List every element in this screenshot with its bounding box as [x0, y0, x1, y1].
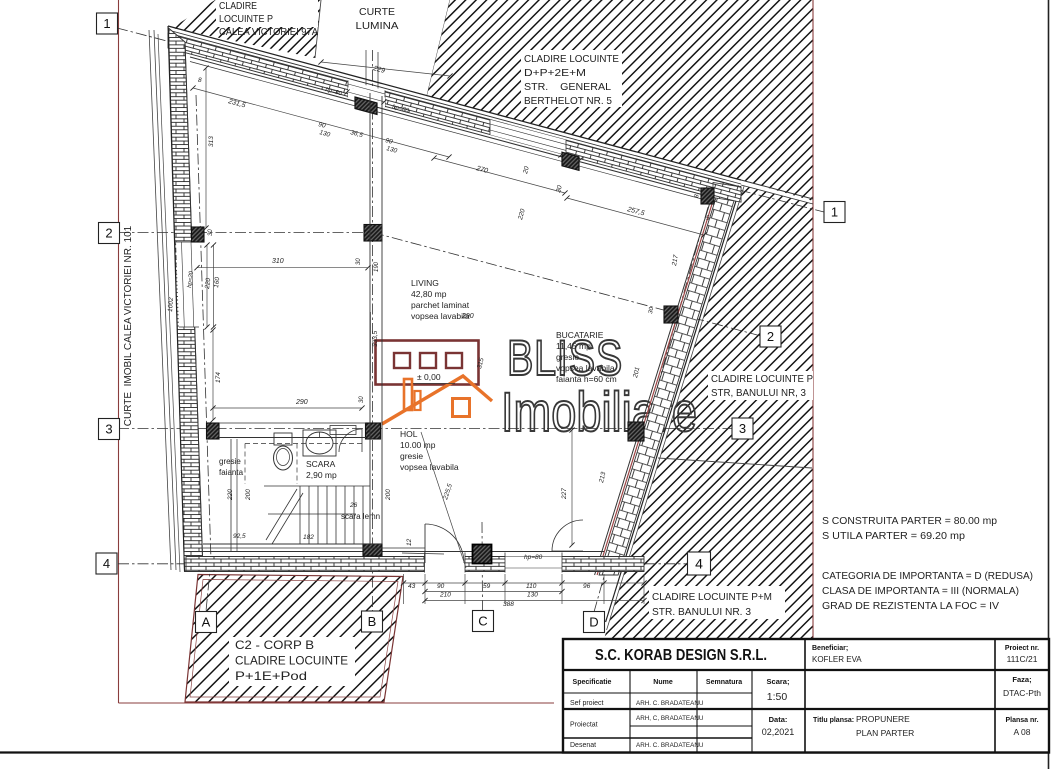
svg-text:111C/21: 111C/21 — [1007, 654, 1038, 664]
svg-text:parchet laminat: parchet laminat — [411, 300, 470, 310]
svg-text:92,5: 92,5 — [233, 533, 246, 540]
svg-text:CLADIRE LOCUINTE: CLADIRE LOCUINTE — [235, 654, 348, 668]
svg-text:LOCUINTE P: LOCUINTE P — [219, 13, 273, 25]
svg-text:C: C — [478, 614, 487, 629]
svg-text:LIVING: LIVING — [411, 278, 439, 288]
svg-text:STR, BANULUI NR, 3: STR, BANULUI NR, 3 — [711, 387, 806, 399]
svg-text:02,2021: 02,2021 — [762, 727, 795, 737]
svg-text:1: 1 — [103, 16, 110, 31]
svg-text:hp=80: hp=80 — [524, 554, 543, 561]
svg-text:227: 227 — [561, 488, 568, 500]
svg-text:S UTILA PARTER = 69.20 mp: S UTILA PARTER = 69.20 mp — [822, 530, 965, 542]
svg-text:A: A — [202, 615, 211, 630]
svg-text:S.C. KORAB DESIGN S.R.L.: S.C. KORAB DESIGN S.R.L. — [595, 647, 767, 664]
svg-text:182: 182 — [303, 534, 314, 541]
svg-text:A 08: A 08 — [1013, 727, 1030, 737]
svg-text:2,90 mp: 2,90 mp — [306, 470, 337, 480]
svg-text:26: 26 — [349, 502, 358, 509]
svg-text:388: 388 — [503, 601, 514, 608]
svg-text:3: 3 — [739, 421, 746, 436]
svg-text:30: 30 — [208, 229, 214, 236]
svg-text:P+1E+Pod: P+1E+Pod — [235, 669, 307, 683]
svg-text:333,5: 333,5 — [372, 330, 379, 347]
svg-text:vopsea lavabila: vopsea lavabila — [411, 311, 470, 321]
svg-text:± 0,00: ± 0,00 — [417, 372, 441, 382]
svg-text:KOFLER EVA: KOFLER EVA — [812, 655, 862, 664]
svg-text:2: 2 — [105, 226, 112, 241]
svg-text:BUCATARIE: BUCATARIE — [556, 330, 604, 340]
svg-text:174: 174 — [215, 372, 222, 383]
svg-text:scara lemn: scara lemn — [341, 512, 380, 521]
svg-text:CATEGORIA DE IMPORTANTA = D (R: CATEGORIA DE IMPORTANTA = D (REDUSA) — [822, 570, 1033, 582]
svg-text:CLADIRE LOCUINTE P+M: CLADIRE LOCUINTE P+M — [652, 591, 772, 603]
svg-text:Proiect nr.: Proiect nr. — [1005, 645, 1039, 652]
svg-text:Specificatie: Specificatie — [573, 679, 612, 686]
svg-text:gresie: gresie — [219, 457, 241, 466]
svg-text:210: 210 — [439, 592, 451, 599]
svg-text:D+P+2E+M: D+P+2E+M — [524, 67, 586, 79]
svg-text:220: 220 — [227, 489, 234, 501]
svg-text:GRAD DE REZISTENTA LA FOC = IV: GRAD DE REZISTENTA LA FOC = IV — [822, 600, 999, 612]
svg-text:42,80 mp: 42,80 mp — [411, 289, 447, 299]
svg-text:130: 130 — [527, 592, 538, 599]
svg-text:Semnatura: Semnatura — [706, 679, 742, 686]
svg-text:SCARA: SCARA — [306, 459, 336, 469]
svg-text:200: 200 — [245, 489, 252, 501]
svg-text:faianta h=60 cm: faianta h=60 cm — [556, 374, 617, 384]
svg-text:200: 200 — [385, 489, 392, 501]
svg-text:220: 220 — [204, 277, 212, 290]
svg-text:110: 110 — [526, 583, 537, 590]
svg-text:Data:: Data: — [769, 715, 788, 724]
svg-text:Proiectat: Proiectat — [570, 722, 598, 729]
svg-text:ARH. C. BRADATEANU: ARH. C. BRADATEANU — [636, 742, 704, 749]
svg-text:gresie: gresie — [400, 451, 423, 461]
svg-text:Faza;: Faza; — [1012, 675, 1031, 684]
svg-text:PROPUNERE: PROPUNERE — [856, 714, 910, 724]
svg-text:CURTE: CURTE — [359, 6, 395, 18]
svg-text:STR. GENERAL: STR. GENERAL — [524, 81, 611, 93]
svg-text:11,45 mp: 11,45 mp — [556, 341, 591, 351]
svg-text:vopsea lavabila: vopsea lavabila — [400, 462, 459, 472]
svg-text:190: 190 — [374, 261, 380, 272]
svg-text:2: 2 — [767, 329, 774, 344]
svg-text:CLADIRE LOCUINTE: CLADIRE LOCUINTE — [524, 53, 619, 65]
svg-text:59: 59 — [483, 583, 491, 590]
svg-text:313: 313 — [208, 136, 215, 147]
svg-text:12: 12 — [406, 538, 413, 546]
svg-text:CLADIRE LOCUINTE P: CLADIRE LOCUINTE P — [711, 373, 813, 385]
svg-text:3: 3 — [105, 422, 112, 437]
svg-text:STR. BANULUI NR. 3: STR. BANULUI NR. 3 — [652, 606, 751, 618]
svg-text:30: 30 — [356, 258, 362, 265]
svg-text:290: 290 — [295, 399, 308, 406]
svg-text:D: D — [589, 615, 598, 630]
svg-text:30: 30 — [359, 396, 365, 403]
svg-text:CLASA DE IMPORTANTA = III (NOR: CLASA DE IMPORTANTA = III (NORMALA) — [822, 585, 1019, 597]
svg-text:CALEA VICTORIEI 97A: CALEA VICTORIEI 97A — [219, 26, 318, 38]
svg-text:96: 96 — [583, 583, 591, 590]
svg-text:Desenat: Desenat — [570, 742, 596, 749]
svg-text:160: 160 — [213, 276, 221, 288]
svg-text:Plansa nr.: Plansa nr. — [1005, 717, 1038, 724]
svg-text:8: 8 — [198, 77, 202, 84]
svg-text:B: B — [368, 614, 377, 629]
svg-text:1:50: 1:50 — [767, 691, 788, 703]
svg-text:Beneficiar;: Beneficiar; — [812, 645, 848, 652]
svg-text:Titlu plansa:: Titlu plansa: — [813, 717, 854, 724]
svg-text:faianta: faianta — [219, 468, 244, 477]
svg-text:BERTHELOT NR. 5: BERTHELOT NR. 5 — [524, 95, 612, 107]
svg-text:CURTE IMOBIL CALEA VICTORIEI: CURTE IMOBIL CALEA VICTORIEI NR. 101 — [123, 225, 134, 426]
svg-text:gresie: gresie — [556, 352, 579, 362]
svg-text:43: 43 — [408, 583, 416, 590]
svg-text:DTAC-Pth: DTAC-Pth — [1003, 688, 1041, 698]
svg-text:Scara;: Scara; — [767, 677, 790, 686]
svg-text:Sef proiect: Sef proiect — [570, 700, 604, 707]
svg-text:90: 90 — [437, 583, 445, 590]
svg-text:PLAN PARTER: PLAN PARTER — [856, 728, 914, 738]
svg-text:1002: 1002 — [167, 297, 175, 312]
svg-text:LUMINA: LUMINA — [356, 20, 399, 32]
svg-text:1: 1 — [831, 205, 838, 220]
svg-text:CLADIRE: CLADIRE — [219, 0, 257, 12]
svg-text:HOL: HOL — [400, 429, 418, 439]
svg-text:Nume: Nume — [653, 679, 673, 686]
svg-text:4: 4 — [695, 556, 703, 572]
svg-text:10.00 mp: 10.00 mp — [400, 440, 436, 450]
svg-text:ARH. C. BRADATEANU: ARH. C. BRADATEANU — [636, 700, 704, 707]
svg-text:vopsea lavabila: vopsea lavabila — [556, 363, 615, 373]
svg-text:ARH, C, BRADATEANU: ARH, C, BRADATEANU — [636, 715, 704, 722]
svg-text:4: 4 — [103, 556, 110, 571]
svg-text:C2 - CORP B: C2 - CORP B — [235, 638, 314, 652]
svg-text:S CONSTRUITA PARTER = 80.00 mp: S CONSTRUITA PARTER = 80.00 mp — [822, 515, 997, 527]
svg-text:310: 310 — [272, 258, 284, 265]
